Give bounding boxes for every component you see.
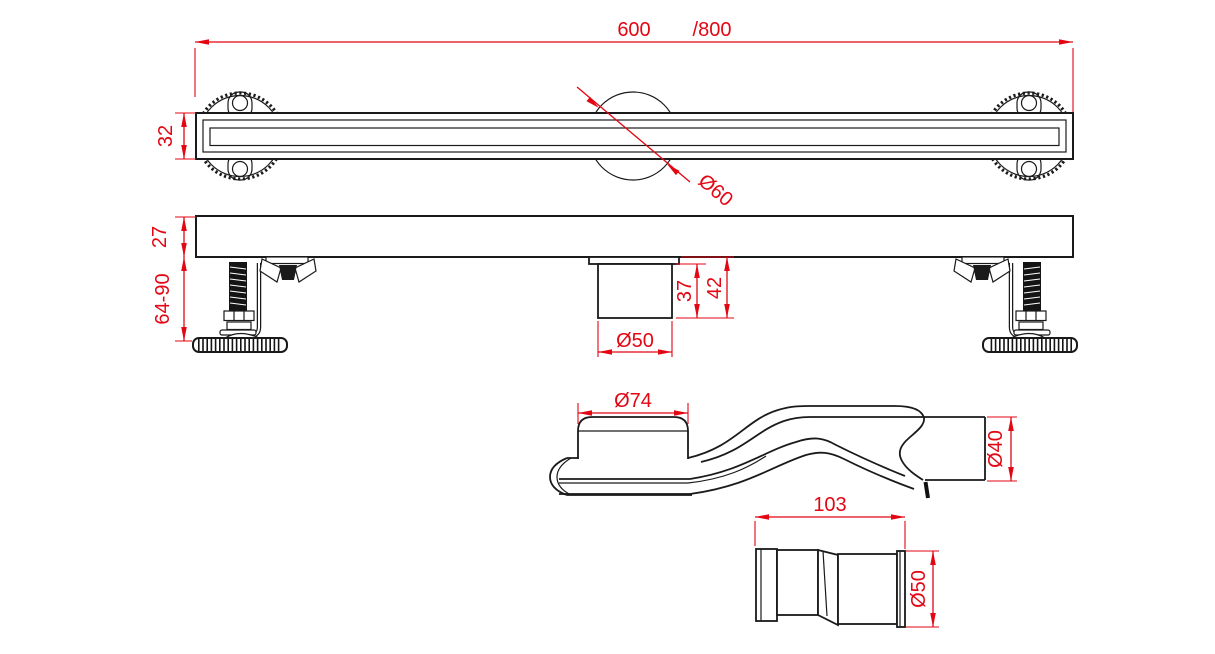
top-view: 600 /800 32 Ø60 [155,19,1073,211]
dim-length: 600 [617,19,650,41]
outlet-flange [589,257,679,264]
dim-outlet-diameter: Ø50 [616,330,654,352]
dim-body-height: 27 [149,226,171,248]
right-adjustable-foot [954,257,1077,352]
alignment-mark [926,482,929,498]
outlet-stub [598,264,672,318]
pipe-inner-top-line [701,417,985,462]
dim-inlet-diameter: Ø74 [614,390,652,412]
adapter-left-ring [756,549,777,621]
technical-drawing-page: 600 /800 32 Ø60 27 64-90 37 42 [0,0,1215,654]
adapter-small-cylinder [777,550,818,615]
dim-flange-diameter: Ø60 [694,170,737,211]
siphon-inlet-cap [578,417,688,459]
dim-channel-width: 32 [155,125,177,147]
dim-siphon-outlet-diameter: Ø40 [985,430,1007,468]
dim-adapter-diameter: Ø50 [908,570,930,608]
adapter-large-cylinder [838,554,897,624]
technical-drawing-canvas: 600 /800 32 Ø60 27 64-90 37 42 [0,0,1215,654]
dim-adapter-length: 103 [813,494,846,516]
dim-outlet-height: 37 [674,280,696,302]
siphon-view: Ø74 Ø40 [550,390,1017,498]
adapter-taper [818,550,838,625]
left-adjustable-foot [193,257,316,352]
dim-length-alt: /800 [693,19,732,41]
adapter-view: 103 Ø50 [755,494,939,627]
adapter-right-ring [897,551,905,627]
dim-leg-height-range: 64-90 [152,273,174,324]
channel-body-front [196,216,1073,257]
dim-outlet-height-total: 42 [704,277,726,299]
front-view: 27 64-90 37 42 Ø50 [149,216,1077,357]
